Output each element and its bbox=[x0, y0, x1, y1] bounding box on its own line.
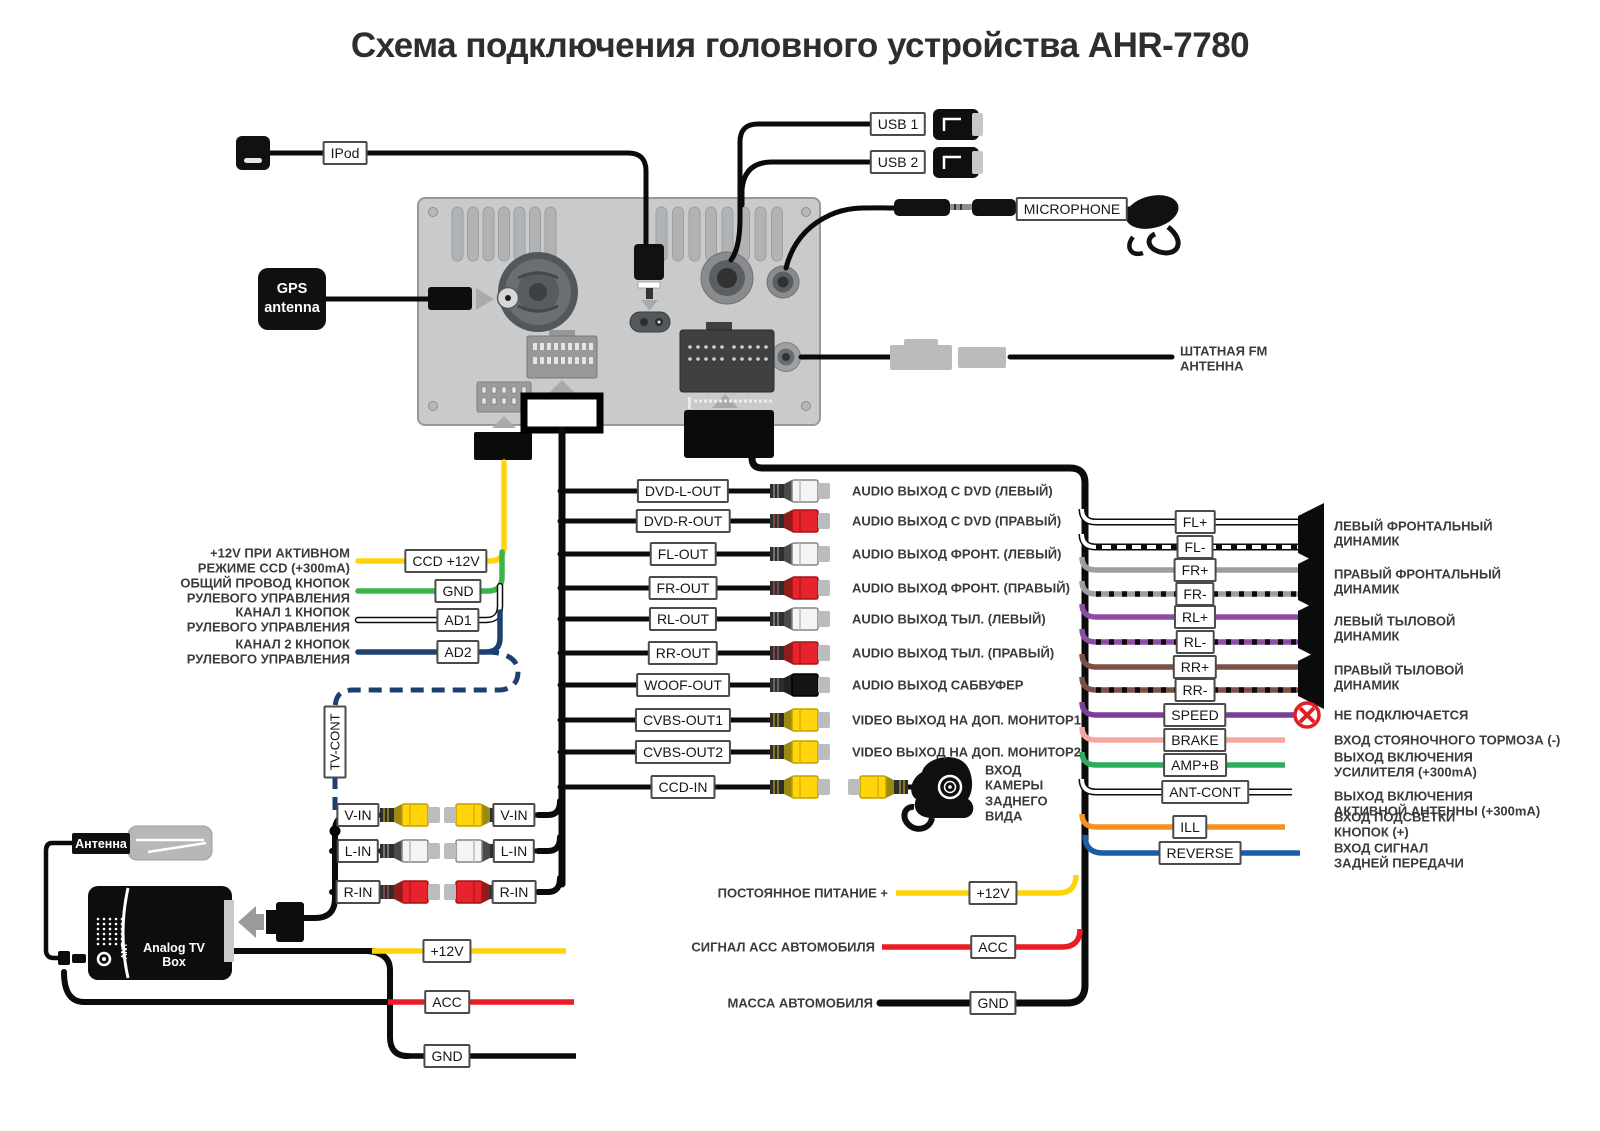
label-fm-antenna: ШТАТНАЯ FM АНТЕННА bbox=[1180, 344, 1267, 375]
wire-label-rr-out: RR-OUT bbox=[648, 641, 718, 665]
desc-brake: ВХОД СТОЯНОЧНОГО ТОРМОЗА (-) bbox=[1334, 732, 1560, 747]
desc-speaker-front-right: ПРАВЫЙ ФРОНТАЛЬНЫЙ ДИНАМИК bbox=[1334, 567, 1501, 598]
wire-label-fr-out: FR-OUT bbox=[649, 576, 718, 600]
wire-label-tv-12v: +12V bbox=[422, 939, 471, 963]
tv-box-plug-icon bbox=[238, 902, 304, 942]
wire-label-dvd-r-out: DVD-R-OUT bbox=[636, 509, 731, 533]
wire-label-r-in-left: R-IN bbox=[336, 880, 381, 904]
wire-label-rr-minus: RR- bbox=[1175, 678, 1216, 702]
desc-ccd-12v: +12V ПРИ АКТИВНОМ РЕЖИМЕ CCD (+300mA) bbox=[198, 546, 350, 577]
wire-label-rl-plus: RL+ bbox=[1174, 605, 1216, 629]
desc-speaker-front-left: ЛЕВЫЙ ФРОНТАЛЬНЫЙ ДИНАМИК bbox=[1334, 519, 1493, 550]
desc-rear-camera: ВХОД КАМЕРЫ ЗАДНЕГО ВИДА bbox=[985, 762, 1048, 823]
wire-label-tv-acc: ACC bbox=[424, 990, 470, 1014]
arrow-left-icon bbox=[238, 906, 256, 938]
wire-label-ill: ILL bbox=[1172, 815, 1207, 839]
label-ant-jack: ANT bbox=[111, 941, 137, 961]
wire-label-power-acc: ACC bbox=[970, 935, 1016, 959]
wire-label-l-in-left: L-IN bbox=[337, 839, 379, 863]
label-usb2: USB 2 bbox=[870, 150, 926, 174]
label-analog-tv-box: Analog TV Box bbox=[136, 946, 212, 964]
usb2-plug-icon bbox=[933, 147, 983, 178]
ipod-connector-icon bbox=[236, 136, 270, 170]
wire-label-cvbs-out2: CVBS-OUT2 bbox=[635, 740, 731, 764]
wire-label-fl-out: FL-OUT bbox=[650, 542, 717, 566]
blank-label bbox=[524, 396, 600, 430]
wire-label-reverse: REVERSE bbox=[1159, 841, 1242, 865]
wire-label-rl-out: RL-OUT bbox=[649, 607, 717, 631]
wire-label-cvbs-out1: CVBS-OUT1 bbox=[635, 708, 731, 732]
gps-plug bbox=[428, 287, 472, 310]
wire-label-dvd-l-out: DVD-L-OUT bbox=[637, 479, 729, 503]
wire-label-amp-b: AMP+B bbox=[1163, 753, 1227, 777]
wire-label-ad1: AD1 bbox=[436, 608, 479, 632]
desc-speed: НЕ ПОДКЛЮЧАЕТСЯ bbox=[1334, 707, 1468, 722]
junction-dot bbox=[330, 826, 341, 837]
desc-speaker-rear-right: ПРАВЫЙ ТЫЛОВОЙ ДИНАМИК bbox=[1334, 663, 1464, 694]
desc-fl-out: AUDIO ВЫХОД ФРОНТ. (ЛЕВЫЙ) bbox=[852, 546, 1061, 561]
desc-fr-out: AUDIO ВЫХОД ФРОНТ. (ПРАВЫЙ) bbox=[852, 580, 1070, 595]
usb1-plug-icon bbox=[933, 109, 983, 140]
wire-label-power-gnd: GND bbox=[969, 991, 1016, 1015]
wire-label-fr-minus: FR- bbox=[1175, 582, 1214, 606]
desc-constant-power: ПОСТОЯННОЕ ПИТАНИЕ + bbox=[718, 885, 888, 900]
label-antenna: Антенна bbox=[72, 833, 130, 854]
car-tv-antenna-icon bbox=[128, 826, 212, 860]
wire-label-ccd12v: CCD +12V bbox=[404, 549, 487, 573]
desc-ill: ВХОД ПОДСВЕТКИ КНОПОК (+) bbox=[1334, 810, 1455, 841]
wire-label-l-in-right: L-IN bbox=[493, 839, 535, 863]
harness-iso bbox=[680, 322, 774, 458]
tv-box-power-wires bbox=[372, 951, 576, 1056]
desc-car-ground: МАССА АВТОМОБИЛЯ bbox=[728, 995, 873, 1010]
wire-label-power-12v: +12V bbox=[968, 881, 1017, 905]
desc-rr-out: AUDIO ВЫХОД ТЫЛ. (ПРАВЫЙ) bbox=[852, 645, 1054, 660]
desc-reverse: ВХОД СИГНАЛ ЗАДНЕЙ ПЕРЕДАЧИ bbox=[1334, 841, 1464, 872]
wire-label-tv-cont: TV-CONT bbox=[324, 705, 347, 778]
desc-swc-gnd: ОБЩИЙ ПРОВОД КНОПОК РУЛЕВОГО УПРАВЛЕНИЯ bbox=[180, 576, 350, 607]
wire-label-v-in-right: V-IN bbox=[492, 803, 535, 827]
label-usb1: USB 1 bbox=[870, 112, 926, 136]
desc-cvbs-out2: VIDEO ВЫХОД НА ДОП. МОНИТОР2 bbox=[852, 744, 1081, 759]
lavalier-microphone-icon bbox=[1122, 190, 1182, 254]
desc-woof-out: AUDIO ВЫХОД САБВУФЕР bbox=[852, 677, 1023, 692]
desc-swc-ad2: КАНАЛ 2 КНОПОК РУЛЕВОГО УПРАВЛЕНИЯ bbox=[187, 637, 350, 668]
rear-camera-icon bbox=[904, 757, 973, 829]
wire-label-gnd: GND bbox=[434, 579, 481, 603]
desc-speaker-rear-left: ЛЕВЫЙ ТЫЛОВОЙ ДИНАМИК bbox=[1334, 614, 1455, 645]
tv-cont-wire bbox=[335, 652, 518, 812]
left-wire-bundle bbox=[335, 462, 518, 812]
antenna-plug-icon bbox=[58, 951, 86, 965]
wire-label-v-in-left: V-IN bbox=[336, 803, 379, 827]
fm-inline-connectors bbox=[890, 339, 1006, 370]
wire-label-speed: SPEED bbox=[1163, 703, 1226, 727]
wire-label-brake: BRAKE bbox=[1163, 728, 1226, 752]
harness-plug-iso bbox=[684, 410, 774, 458]
harness-plug-small bbox=[474, 432, 532, 460]
wire-label-ad2: AD2 bbox=[436, 640, 479, 664]
desc-dvd-l-out: AUDIO ВЫХОД С DVD (ЛЕВЫЙ) bbox=[852, 483, 1053, 498]
wire-label-fl-plus: FL+ bbox=[1175, 510, 1216, 534]
wire-label-fr-plus: FR+ bbox=[1174, 558, 1217, 582]
wire-label-woof-out: WOOF-OUT bbox=[636, 673, 730, 697]
wiring-diagram-ahr-7780: Схема подключения головного устройства A… bbox=[0, 0, 1600, 1131]
desc-amp-b: ВЫХОД ВКЛЮЧЕНИЯ УСИЛИТЕЛЯ (+300mA) bbox=[1334, 750, 1477, 781]
wire-label-rr-plus: RR+ bbox=[1173, 655, 1217, 679]
page-title: Схема подключения головного устройства A… bbox=[0, 26, 1600, 66]
desc-swc-ad1: КАНАЛ 1 КНОПОК РУЛЕВОГО УПРАВЛЕНИЯ bbox=[187, 605, 350, 636]
no-connect-icon bbox=[1295, 703, 1319, 727]
wire-label-tv-gnd: GND bbox=[423, 1044, 470, 1068]
label-microphone: MICROPHONE bbox=[1016, 197, 1128, 221]
wire-label-ant-cont: ANT-CONT bbox=[1161, 780, 1249, 804]
desc-dvd-r-out: AUDIO ВЫХОД С DVD (ПРАВЫЙ) bbox=[852, 513, 1061, 528]
wire-label-ccd-in: CCD-IN bbox=[651, 775, 716, 799]
label-gps-antenna: GPS antenna bbox=[258, 268, 326, 330]
speaker-connector-icons bbox=[1298, 503, 1324, 709]
wire-label-rl-minus: RL- bbox=[1176, 630, 1215, 654]
desc-rl-out: AUDIO ВЫХОД ТЫЛ. (ЛЕВЫЙ) bbox=[852, 611, 1046, 626]
wire-label-r-in-right: R-IN bbox=[492, 880, 537, 904]
head-unit-rear-panel bbox=[418, 198, 820, 460]
wire-label-fl-minus: FL- bbox=[1177, 535, 1214, 559]
label-ipod: IPod bbox=[323, 141, 368, 165]
desc-cvbs-out1: VIDEO ВЫХОД НА ДОП. МОНИТОР1 bbox=[852, 712, 1081, 727]
desc-acc-signal: СИГНАЛ ACC АВТОМОБИЛЯ bbox=[691, 939, 875, 954]
